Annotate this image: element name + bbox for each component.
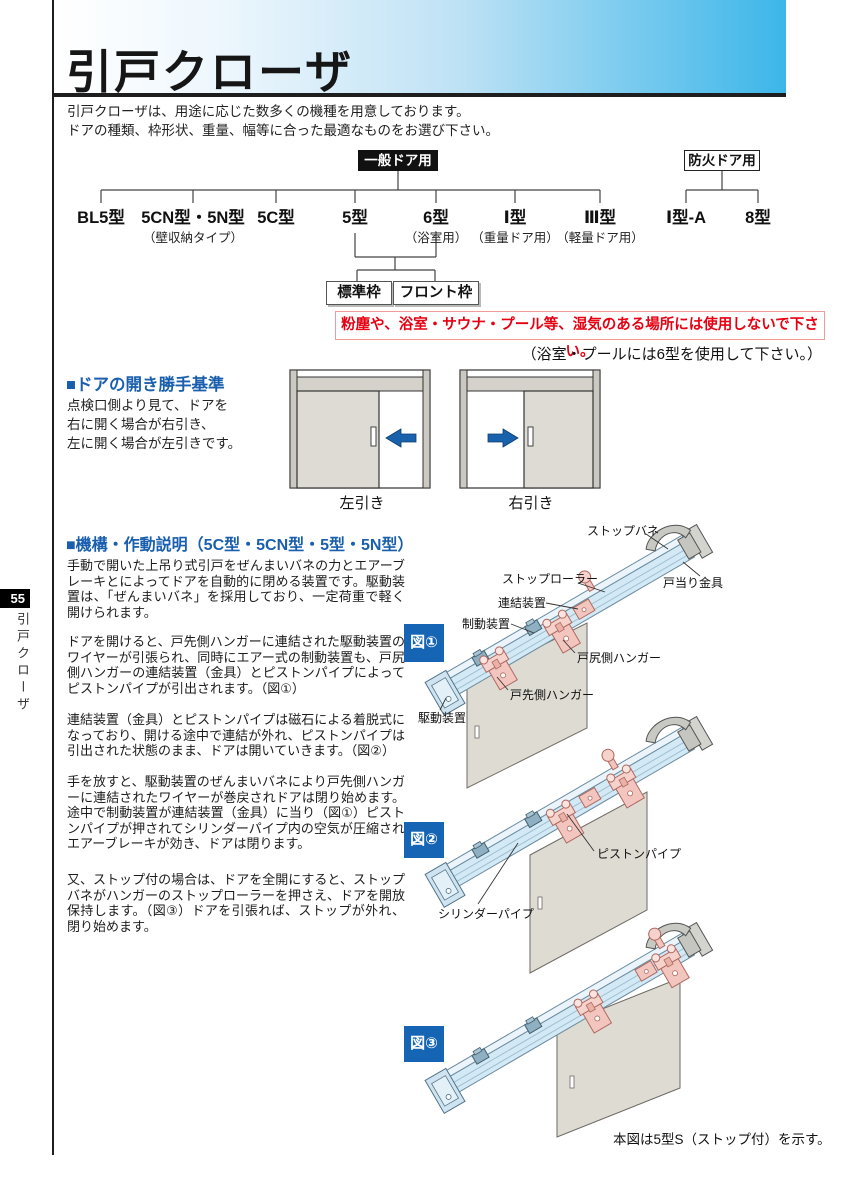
frame-box-standard: 標準枠 — [326, 281, 392, 305]
fig1-label: 図① — [404, 624, 444, 662]
callout-cylinder-pipe: シリンダーパイプ — [438, 905, 534, 922]
direction-line: 左に開く場合が左引きです。 — [67, 434, 241, 453]
tree-item-5cn-5n-sub: （壁収納タイプ） — [143, 227, 243, 246]
callout-rear-hanger: 戸尻側ハンガー — [577, 649, 661, 666]
callout-brake: 制動装置 — [462, 615, 510, 632]
tree-item-bl5: BL5型 — [77, 204, 125, 228]
tree-item-8: 8型 — [745, 204, 771, 228]
direction-heading: ■ドアの開き勝手基準 — [66, 371, 224, 395]
mechanism-paragraph-4: 手を放すと、駆動装置のぜんまいバネにより戸先側ハンガーに連結されたワイヤーが巻戻… — [67, 774, 405, 852]
intro-text: 引戸クローザは、用途に応じた数多くの機種を用意しております。 ドアの種類、枠形状… — [67, 102, 499, 140]
tree-item-6-sub: （浴室用） — [405, 227, 468, 246]
warning-subnote: （浴室・プールには6型を使用して下さい。） — [522, 343, 822, 364]
page-number: 55 — [0, 589, 30, 608]
intro-line: ドアの種類、枠形状、重量、幅等に合った最適なものをお選び下さい。 — [67, 121, 499, 140]
callout-front-hanger: 戸先側ハンガー — [510, 686, 594, 703]
tree-item-5cn-5n: 5CN型・5N型 — [141, 204, 245, 228]
tree-item-6: 6型 — [423, 204, 449, 228]
tree-item-1a: Ⅰ型-A — [666, 204, 706, 228]
tree-root-fire: 防火ドア用 — [684, 150, 760, 171]
frame-box-front: フロント枠 — [393, 281, 479, 305]
direction-body: 点検口側より見て、ドアを 右に開く場合が右引き、 左に開く場合が左引きです。 — [67, 396, 241, 453]
caption-left-pull: 左引き — [339, 492, 384, 513]
caption-right-pull: 右引き — [508, 492, 553, 513]
tree-item-5c: 5C型 — [257, 204, 295, 228]
mechanism-paragraph-5: 又、ストップ付の場合は、ドアを全開にすると、ストップバネがハンガーのストップロー… — [67, 872, 405, 934]
tree-item-5: 5型 — [342, 204, 368, 228]
door-diagram-right — [460, 370, 600, 488]
mechanism-paragraph-2: ドアを開けると、戸先側ハンガーに連結された駆動装置のワイヤーが引張られ、同時にエ… — [67, 634, 405, 696]
door-diagram-left — [290, 370, 430, 488]
fig2-label: 図② — [404, 822, 444, 858]
page-title: 引戸クローザ — [66, 36, 353, 102]
callout-coupling: 連結装置 — [498, 594, 546, 611]
side-tab-label: 引戸クローザ — [13, 612, 32, 714]
mechanism-paragraph-1: 手動で開いた上吊り式引戸をぜんまいバネの力とエアーブレーキとによってドアを自動的… — [67, 558, 405, 620]
left-rule — [52, 0, 54, 1155]
direction-line: 点検口側より見て、ドアを — [67, 396, 241, 415]
callout-drive: 駆動装置 — [418, 709, 466, 726]
callout-door-stop: 戸当り金具 — [663, 574, 723, 591]
warning-box: 粉塵や、浴室・サウナ・プール等、湿気のある場所には使用しないで下さい。 — [335, 311, 825, 340]
tree-item-3: Ⅲ型 — [584, 204, 616, 228]
intro-line: 引戸クローザは、用途に応じた数多くの機種を用意しております。 — [67, 102, 499, 121]
direction-line: 右に開く場合が右引き、 — [67, 415, 241, 434]
tree-root-general: 一般ドア用 — [358, 150, 438, 171]
mechanism-heading: ■機構・作動説明（5C型・5CN型・5型・5N型） — [66, 531, 413, 555]
callout-stop-spring: ストップバネ — [587, 522, 659, 539]
callout-piston-pipe: ピストンパイプ — [597, 845, 681, 862]
figure-note: 本図は5型S（ストップ付）を示す。 — [613, 1128, 831, 1148]
callout-stop-roller: ストップローラー — [502, 570, 598, 587]
catalog-page: 引戸クローザ 引戸クローザは、用途に応じた数多くの機種を用意しております。 ドア… — [0, 0, 848, 1200]
tree-item-1-sub: （重量ドア用） — [471, 227, 559, 246]
fig2-illustration — [417, 702, 719, 973]
fig3-label: 図③ — [404, 1026, 444, 1062]
tree-item-1: Ⅰ型 — [504, 204, 527, 228]
tree-item-3-sub: （軽量ドア用） — [556, 227, 644, 246]
mechanism-paragraph-3: 連結装置（金具）とピストンパイプは磁石による着脱式になっており、開ける途中で連結… — [67, 712, 405, 759]
